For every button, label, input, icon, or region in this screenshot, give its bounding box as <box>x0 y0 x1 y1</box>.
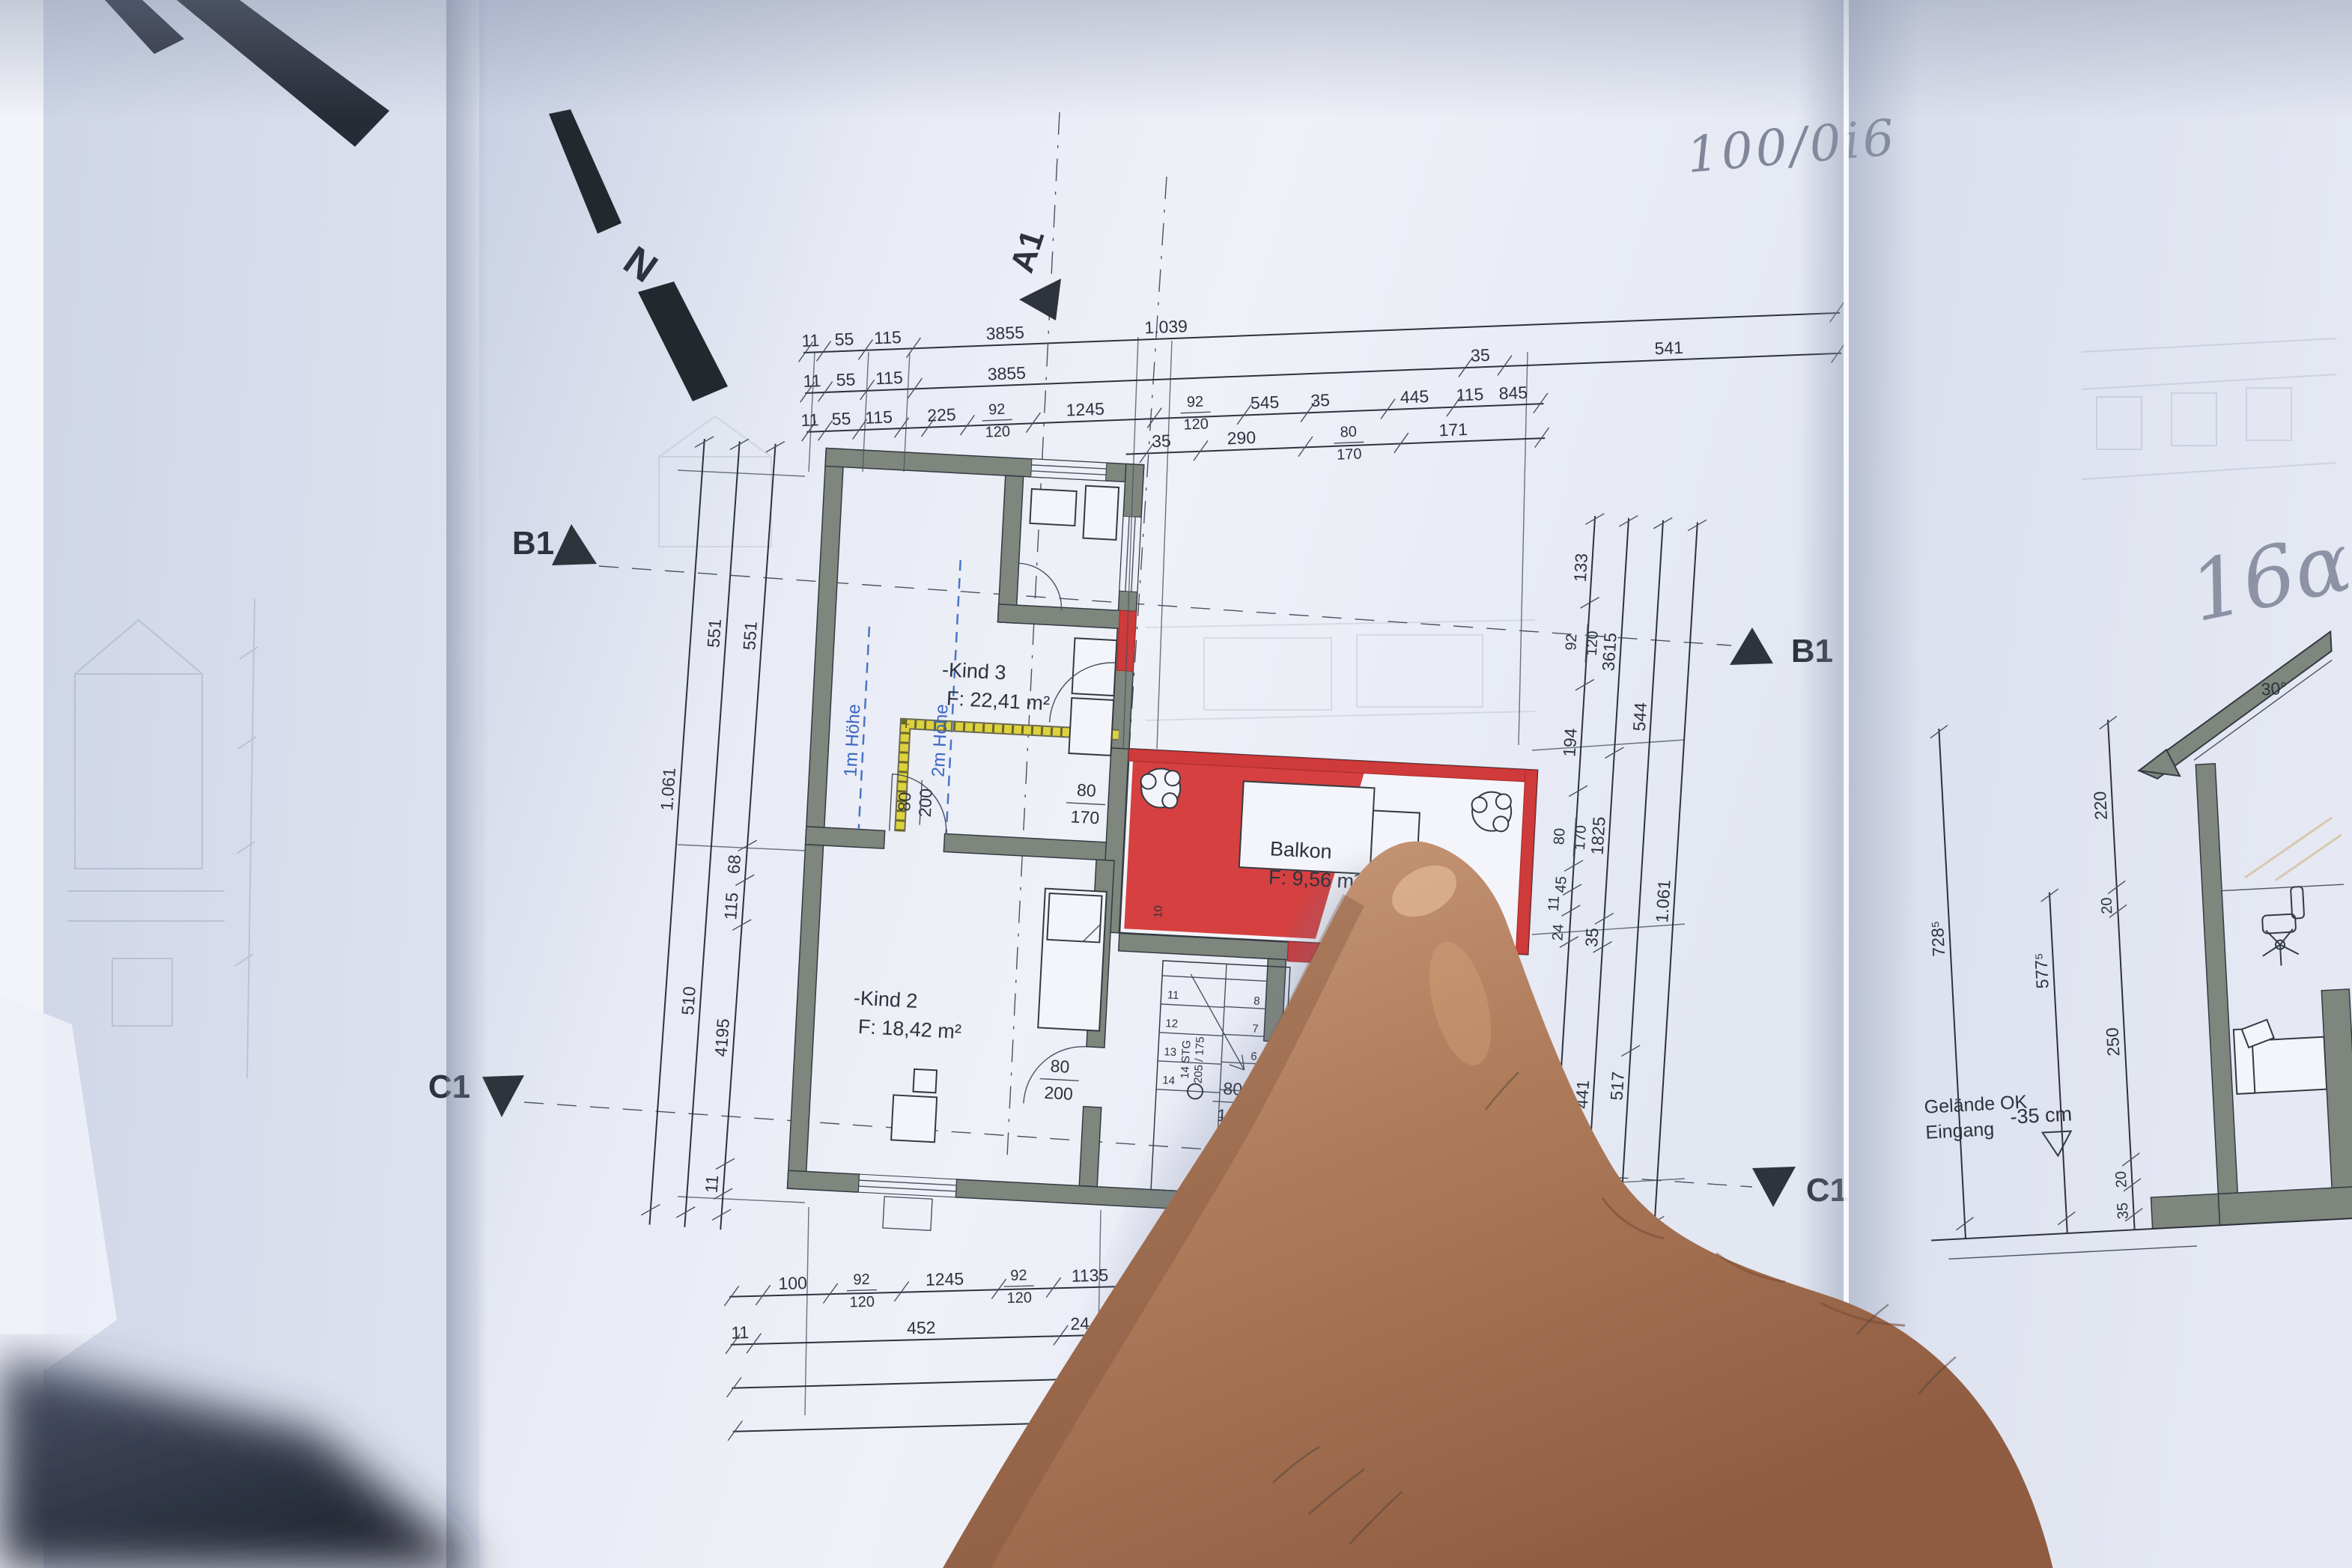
dim: 35 <box>1471 345 1491 365</box>
dim: 1825 <box>1587 816 1609 856</box>
height-label-1m: 1m Höhe <box>840 704 864 778</box>
wall-bottom-a <box>788 1170 860 1192</box>
dim: 11 <box>801 330 820 350</box>
dim: 220 <box>2090 791 2111 821</box>
stair-step: 14 <box>1162 1074 1176 1087</box>
b1-left-label: B1 <box>512 525 554 562</box>
k2-dresser <box>891 1095 937 1142</box>
dim: 115 <box>865 407 893 428</box>
room-label: -Kind 3 <box>941 658 1006 684</box>
dim: 11 <box>803 371 821 391</box>
dim: 1245 <box>926 1269 964 1289</box>
dim: 225 <box>927 404 956 425</box>
dim: 92 <box>1563 633 1580 651</box>
k3-wardrobe <box>1069 698 1113 756</box>
dim: 80 <box>1551 827 1568 845</box>
dim: 120 <box>1183 416 1209 433</box>
stair-step: 13 <box>1164 1045 1177 1059</box>
blueprint-photo: N A1 B1 B1 C1 C1 <box>0 0 2352 1568</box>
dim: 11 <box>702 1174 723 1194</box>
dim: 20 <box>2113 1170 2130 1188</box>
door-label: 200 <box>1044 1083 1074 1104</box>
wall-mid-a <box>806 827 885 848</box>
dim: 35 <box>1152 431 1172 451</box>
door-label: 170 <box>1070 806 1100 827</box>
stair-text: 14 STG <box>1179 1039 1194 1079</box>
ground-level-value: -35 cm <box>2010 1102 2073 1128</box>
dim: 551 <box>739 621 761 651</box>
k2-bed <box>1038 889 1107 1031</box>
dim: 541 <box>1654 338 1683 358</box>
dim: 545 <box>1250 392 1279 413</box>
dim: 80 <box>1340 424 1357 441</box>
stair-step: 11 <box>1167 988 1179 1002</box>
dim: 115 <box>720 892 741 920</box>
dim: 45 <box>1552 875 1569 893</box>
dim: 24 <box>1549 923 1567 941</box>
dim: 4195 <box>711 1018 733 1057</box>
dim: 55 <box>831 409 851 429</box>
dim: 544 <box>1629 702 1650 732</box>
dim: 11 <box>731 1322 750 1343</box>
door-label: 80 <box>1076 780 1096 800</box>
dim: 845 <box>1498 383 1528 403</box>
dim: 92 <box>853 1271 870 1289</box>
dim: 120 <box>1006 1289 1032 1307</box>
dim: 35 <box>1310 390 1331 410</box>
dim: 55 <box>836 369 856 389</box>
dim: 120 <box>985 423 1010 440</box>
dim: 171 <box>1438 419 1468 440</box>
dim: 551 <box>703 619 725 648</box>
stair-step: 12 <box>1165 1017 1179 1030</box>
dim: 11 <box>800 410 819 430</box>
dim: 1.039 <box>1144 316 1188 337</box>
dim: 35 <box>2115 1202 2132 1219</box>
dim: 452 <box>907 1318 936 1338</box>
dim: 115 <box>874 327 902 347</box>
dim: 728⁵ <box>1927 920 1948 957</box>
dim: 3855 <box>987 363 1026 384</box>
roof-angle-label: 30° <box>2261 678 2288 699</box>
door-label: 80 <box>1050 1056 1070 1076</box>
door-label: 200 <box>915 788 936 818</box>
dim: 11 <box>1546 896 1563 912</box>
dim: 577⁵ <box>2031 952 2052 989</box>
dim: 1.061 <box>1652 879 1674 923</box>
dim: 3855 <box>985 323 1024 344</box>
dim: 100 <box>778 1273 807 1293</box>
dim: 3615 <box>1599 632 1620 672</box>
k2-dresser-small <box>914 1069 938 1093</box>
dim: 92 <box>1186 394 1203 411</box>
wall-k2-right-b <box>1079 1107 1101 1187</box>
dim: 250 <box>2103 1027 2124 1057</box>
height-label-2m: 2m Höhe <box>929 704 952 778</box>
dim: 1245 <box>1066 399 1104 420</box>
landing-label: 10 <box>1152 905 1165 919</box>
right-page <box>1847 0 2352 1568</box>
dim: 1.061 <box>657 767 679 811</box>
k3-wardrobe <box>1072 638 1117 696</box>
dim: 115 <box>875 368 904 388</box>
room-label: Balkon <box>1269 837 1332 863</box>
dim: 290 <box>1227 428 1256 448</box>
dim: 194 <box>1559 727 1580 757</box>
stair-step: 8 <box>1254 994 1260 1007</box>
dim: 35 <box>1581 927 1602 947</box>
dim: 20 <box>2098 897 2115 914</box>
ground-label: Eingang <box>1925 1119 1995 1143</box>
dim: 92 <box>1010 1267 1027 1284</box>
dim: 1135 <box>1071 1265 1108 1286</box>
stair-text: 205 / 175 <box>1192 1036 1207 1084</box>
dim: 517 <box>1607 1071 1628 1101</box>
dim: 133 <box>1570 553 1591 583</box>
dim: 55 <box>834 329 854 349</box>
dim: 445 <box>1400 386 1429 407</box>
dim: 68 <box>723 854 744 875</box>
dim: 120 <box>849 1294 875 1311</box>
photo-of-floorplan: N A1 B1 B1 C1 C1 <box>0 0 2352 1568</box>
dim: 115 <box>1456 384 1484 404</box>
dim: 510 <box>678 985 699 1015</box>
top-vignette <box>0 0 2352 120</box>
dim: 170 <box>1337 446 1362 463</box>
crease-shadow-left <box>446 0 488 1568</box>
dim: 92 <box>988 401 1006 419</box>
door-label: 80 <box>894 791 914 812</box>
entry-step <box>2151 1194 2219 1229</box>
room-label: -Kind 2 <box>853 986 918 1012</box>
